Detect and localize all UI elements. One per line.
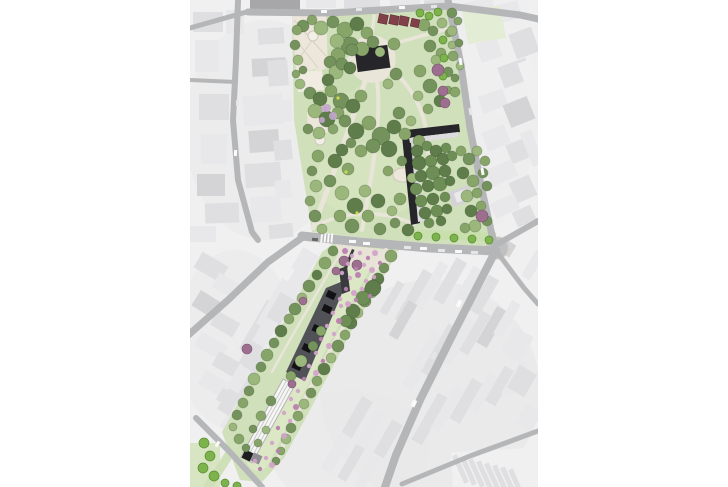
city-block <box>201 134 227 164</box>
park-tree <box>286 423 296 433</box>
park-tree <box>339 115 351 127</box>
car <box>404 246 411 249</box>
purple-tree <box>432 64 444 76</box>
park-tree <box>419 207 431 219</box>
park-tree <box>309 210 321 222</box>
park-tree <box>292 25 302 35</box>
blossom-dot <box>314 351 318 355</box>
park-tree <box>326 353 336 363</box>
lawn-dot <box>344 170 347 173</box>
blossom-dot <box>302 377 306 381</box>
purple-tree <box>299 297 307 305</box>
park-tree <box>316 326 326 336</box>
park-tree <box>371 194 385 208</box>
car <box>431 5 437 8</box>
park-tree <box>454 17 462 25</box>
park-tree <box>269 338 279 348</box>
park-tree <box>394 193 406 205</box>
park-tree <box>433 177 447 191</box>
park-tree <box>261 349 273 361</box>
blossom-dot <box>253 459 257 463</box>
park-tree <box>286 371 296 381</box>
park-tree <box>472 146 482 156</box>
blossom-dot <box>258 467 262 471</box>
park-tree <box>472 188 482 198</box>
blossom-dot <box>358 251 362 255</box>
car <box>455 250 462 253</box>
park-tree <box>424 40 436 52</box>
park-tree <box>295 79 305 89</box>
park-tree <box>293 55 303 65</box>
park-tree <box>306 388 316 398</box>
blossom-dot <box>281 433 287 439</box>
purple-tree <box>476 210 488 222</box>
park-tree <box>359 185 371 197</box>
park-tree <box>424 218 434 228</box>
blossom-dot <box>276 426 280 430</box>
maroon-tree <box>389 15 400 26</box>
park-tree <box>362 210 374 222</box>
masterplan-figure <box>0 0 728 487</box>
park-tree <box>413 91 423 101</box>
car <box>420 247 427 250</box>
blossom-dot <box>313 370 319 376</box>
purple-tree <box>332 267 340 275</box>
park-tree <box>374 223 386 235</box>
blossom-dot <box>321 359 325 363</box>
blossom-dot <box>368 294 372 298</box>
park-tree <box>289 303 301 315</box>
city-block <box>197 174 225 196</box>
park-tree <box>293 411 303 421</box>
blossom-dot <box>288 419 292 423</box>
blossom-dot <box>366 256 370 260</box>
park-tree <box>356 291 370 305</box>
park-tree <box>387 206 397 216</box>
park-tree <box>234 434 244 444</box>
blossom-dot <box>338 297 342 301</box>
park-tree <box>425 155 437 167</box>
park-tree <box>436 216 446 226</box>
park-tree <box>332 340 344 352</box>
blossom-dot <box>364 279 368 283</box>
city-block <box>271 99 293 123</box>
city-block <box>257 27 284 45</box>
park-tree <box>342 163 354 175</box>
park-tree <box>284 314 294 324</box>
park-tree <box>327 16 339 28</box>
lawn-dot <box>355 211 358 214</box>
blossom-dot <box>336 318 342 324</box>
park-tree <box>266 396 276 406</box>
city-block <box>273 139 293 160</box>
park-tree <box>455 39 463 47</box>
car <box>236 100 239 106</box>
park-tree <box>457 167 469 179</box>
park-tree <box>355 145 367 157</box>
blossom-dot <box>342 248 348 254</box>
park-tree <box>448 51 458 61</box>
park-tree <box>476 201 486 211</box>
park-tree <box>254 439 262 447</box>
blossom-dot <box>331 311 335 315</box>
car <box>356 8 362 11</box>
plan-root <box>175 0 545 487</box>
park-tree <box>305 196 315 206</box>
park-tree <box>312 270 322 280</box>
park-tree <box>387 120 401 134</box>
blossom-dot <box>345 301 351 307</box>
park-tree <box>362 116 376 130</box>
park-tree <box>312 376 322 386</box>
maroon-tree <box>399 16 410 27</box>
street-tree <box>198 463 208 473</box>
park-tree <box>439 165 451 177</box>
park-tree <box>324 175 336 187</box>
park-tree <box>290 40 300 50</box>
park-tree <box>465 205 477 217</box>
park-tree <box>423 104 433 114</box>
street-tree <box>440 54 448 62</box>
park-tree <box>307 166 317 176</box>
street-tree <box>434 8 442 16</box>
park-tree <box>388 38 400 50</box>
lawn-dot <box>336 96 339 99</box>
masterplan-svg <box>0 0 728 487</box>
park-tree <box>340 330 350 340</box>
park-tree <box>461 190 473 202</box>
park-tree <box>366 139 380 153</box>
park-tree <box>229 423 237 431</box>
lavender-tree <box>329 112 337 120</box>
park-tree <box>460 223 470 233</box>
park-tree <box>415 170 427 182</box>
blossom-dot <box>346 262 350 266</box>
park-tree <box>440 192 450 202</box>
city-block <box>268 223 293 239</box>
street-tree <box>221 479 229 487</box>
blossom-dot <box>369 267 375 273</box>
car <box>234 150 237 156</box>
park-tree <box>244 386 254 396</box>
park-tree <box>402 224 414 236</box>
purple-tree <box>438 86 448 96</box>
park-tree <box>328 246 338 256</box>
park-tree <box>335 186 349 200</box>
city-block <box>195 40 219 72</box>
park-tree <box>410 183 422 195</box>
park-tree <box>328 124 338 134</box>
park-tree <box>345 219 359 233</box>
blossom-dot <box>348 276 352 280</box>
blossom-dot <box>264 456 268 460</box>
street-tree <box>468 235 476 243</box>
park-tree <box>431 55 441 65</box>
maroon-tree <box>378 14 389 25</box>
park-tree <box>390 218 400 228</box>
park-tree <box>397 156 407 166</box>
park-tree <box>310 180 322 192</box>
park-tree <box>249 425 257 433</box>
park-tree <box>299 399 309 409</box>
car <box>349 240 356 243</box>
park-tree <box>381 141 397 157</box>
blossom-dot <box>378 261 382 265</box>
park-tree <box>347 198 363 214</box>
street-tree <box>209 471 219 481</box>
street-tree <box>485 236 493 244</box>
city-block <box>205 202 240 223</box>
park-tree <box>414 65 426 77</box>
street-tree <box>450 234 458 242</box>
park-tree <box>295 355 307 367</box>
blossom-dot <box>372 275 376 279</box>
city-block <box>267 59 289 86</box>
park-tree <box>330 34 344 48</box>
park-tree <box>344 62 356 74</box>
street-tree <box>439 36 447 44</box>
park-tree <box>442 204 452 214</box>
blossom-dot <box>344 287 348 291</box>
park-tree <box>437 18 447 28</box>
blossom-dot <box>293 404 299 410</box>
park-tree <box>303 124 313 134</box>
park-tree <box>412 156 426 170</box>
car <box>399 6 405 9</box>
blossom-dot <box>296 389 300 393</box>
park-tree <box>390 68 402 80</box>
blossom-dot <box>350 254 354 258</box>
park-tree <box>427 193 439 205</box>
lavender-tree <box>319 117 325 123</box>
blossom-dot <box>362 263 366 267</box>
park-tree <box>406 116 416 126</box>
blossom-dot <box>354 298 358 302</box>
blossom-dot <box>319 337 323 341</box>
park-tree <box>317 224 327 234</box>
park-tree <box>313 127 325 139</box>
street-tree <box>205 451 215 461</box>
blossom-dot <box>339 304 343 308</box>
purple-tree <box>242 344 252 354</box>
city-block <box>250 195 282 223</box>
park-tree <box>445 176 455 186</box>
maroon-tree <box>410 18 419 27</box>
blossom-dot <box>354 267 358 271</box>
park-tree <box>383 166 393 176</box>
park-tree <box>346 138 356 148</box>
park-tree <box>275 325 287 337</box>
park-tree <box>480 156 490 166</box>
blossom-dot <box>270 441 274 445</box>
blossom-dot <box>276 449 280 453</box>
park-tree <box>447 151 457 161</box>
park-tree <box>355 90 367 102</box>
park-tree <box>242 444 250 452</box>
lavender-tree <box>321 106 327 112</box>
street-tree <box>432 233 440 241</box>
park-tree <box>463 153 475 165</box>
park-tree <box>350 17 364 31</box>
park-tree <box>469 220 481 232</box>
park-tree <box>232 410 242 420</box>
park-tree <box>428 26 438 36</box>
park-tree <box>385 250 397 262</box>
blossom-dot <box>326 343 332 349</box>
blossom-dot <box>307 364 311 368</box>
city-block <box>306 0 336 8</box>
park-tree <box>415 195 427 207</box>
park-tree <box>450 87 460 97</box>
park-tree <box>314 21 328 35</box>
park-tree <box>303 280 315 292</box>
park-tree <box>319 257 331 269</box>
park-tree <box>312 150 324 162</box>
park-tree <box>292 70 300 78</box>
city-block <box>344 0 380 8</box>
blossom-dot <box>289 397 293 401</box>
park-tree <box>482 181 492 191</box>
park-tree <box>447 26 457 36</box>
blossom-dot <box>351 290 357 296</box>
park-tree <box>238 398 248 408</box>
purple-tree <box>288 380 296 388</box>
city-block <box>190 226 216 242</box>
park-tree <box>399 128 411 140</box>
park-tree <box>348 123 364 139</box>
blossom-dot <box>340 271 344 275</box>
car <box>363 242 370 245</box>
street-tree <box>425 12 433 20</box>
street-tree <box>414 232 422 240</box>
park-tree <box>447 8 457 18</box>
blossom-dot <box>269 462 275 468</box>
park-tree <box>308 341 318 351</box>
blossom-dot <box>360 287 364 291</box>
car <box>438 249 445 252</box>
park-tree <box>334 210 346 222</box>
park-tree <box>375 47 385 57</box>
park-tree <box>383 79 393 89</box>
park-tree <box>456 146 466 156</box>
blossom-dot <box>372 250 378 256</box>
road <box>190 80 236 82</box>
park-tree <box>367 36 379 48</box>
car <box>312 238 318 241</box>
car <box>321 10 327 13</box>
blossom-dot <box>355 272 361 278</box>
park-tree <box>328 154 342 168</box>
park-tree <box>256 411 266 421</box>
park-tree <box>411 145 423 157</box>
park-tree <box>299 66 307 74</box>
park-tree <box>346 44 358 56</box>
park-tree <box>322 74 334 86</box>
park-tree <box>423 79 437 93</box>
park-tree <box>318 363 330 375</box>
street-tree <box>233 482 241 487</box>
park-tree <box>248 373 260 385</box>
street-tree <box>199 438 209 448</box>
street-tree <box>416 9 424 17</box>
park-tree <box>431 205 443 217</box>
park-tree <box>422 180 434 192</box>
purple-tree <box>440 98 450 108</box>
park-tree <box>467 175 479 187</box>
park-tree <box>393 107 405 119</box>
park-tree <box>262 426 270 434</box>
park-tree <box>336 144 348 156</box>
blossom-dot <box>282 411 286 415</box>
car <box>471 251 478 254</box>
park-tree <box>256 362 266 372</box>
blossom-dot <box>332 332 336 336</box>
city-block <box>199 94 229 120</box>
blossom-dot <box>325 324 329 328</box>
